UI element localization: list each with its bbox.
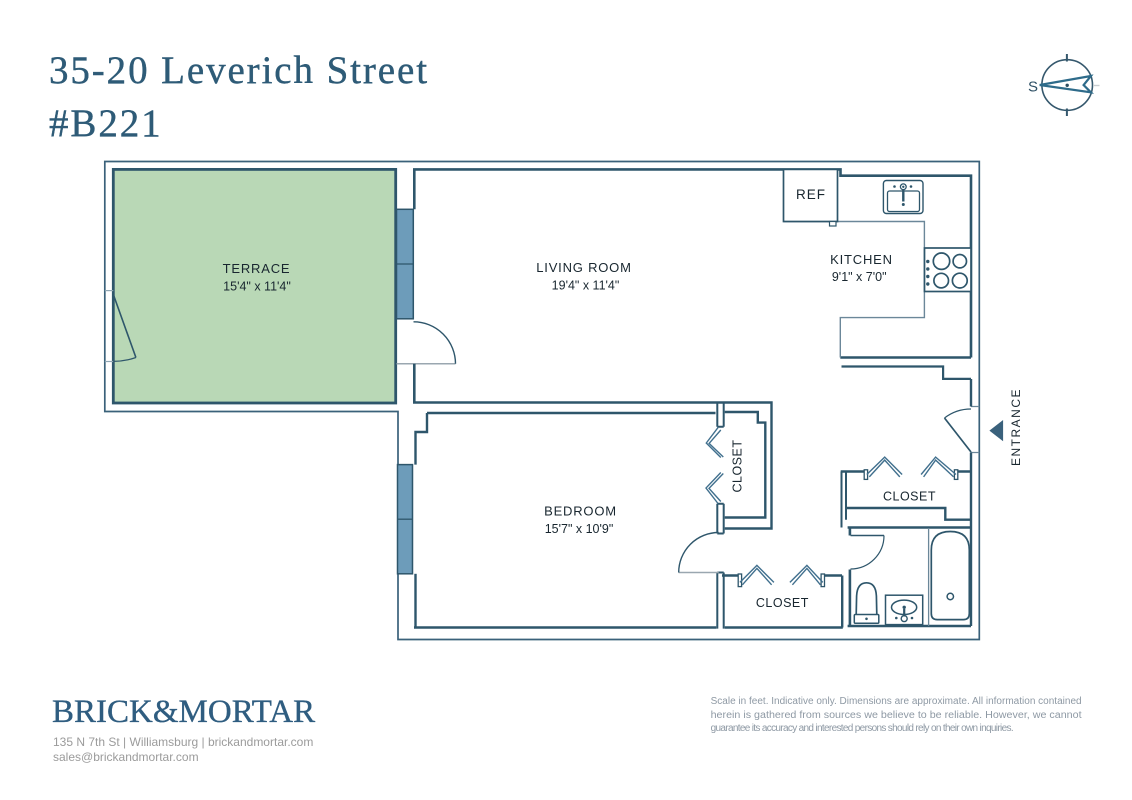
svg-text:ENTRANCE: ENTRANCE bbox=[1009, 388, 1023, 466]
svg-text:REF: REF bbox=[796, 187, 826, 202]
svg-text:S: S bbox=[1028, 79, 1038, 96]
svg-text:sales@brickandmortar.com: sales@brickandmortar.com bbox=[53, 750, 199, 764]
svg-text:herein is gathered from source: herein is gathered from sources we belie… bbox=[711, 710, 1082, 721]
svg-text:135 N 7th St | Williamsburg |: 135 N 7th St | Williamsburg | brickandmo… bbox=[53, 735, 313, 749]
svg-text:KITCHEN: KITCHEN bbox=[830, 252, 893, 267]
svg-text:15'4" x 11'4": 15'4" x 11'4" bbox=[223, 280, 291, 294]
svg-text:Scale in feet. Indicative only: Scale in feet. Indicative only. Dimensio… bbox=[711, 696, 1082, 707]
svg-text:BEDROOM: BEDROOM bbox=[544, 504, 617, 519]
svg-text:19'4" x 11'4": 19'4" x 11'4" bbox=[552, 279, 620, 293]
svg-text:CLOSET: CLOSET bbox=[883, 490, 936, 504]
svg-text:TERRACE: TERRACE bbox=[223, 261, 291, 276]
svg-text:BRICK&MORTAR: BRICK&MORTAR bbox=[52, 694, 315, 730]
svg-text:9'1" x 7'0": 9'1" x 7'0" bbox=[832, 270, 887, 284]
svg-text:CLOSET: CLOSET bbox=[756, 596, 809, 610]
svg-text:#B221: #B221 bbox=[49, 102, 163, 145]
svg-text:guarantee its accuracy and int: guarantee its accuracy and interested pe… bbox=[711, 723, 1014, 734]
svg-text:CLOSET: CLOSET bbox=[731, 439, 745, 492]
svg-text:LIVING ROOM: LIVING ROOM bbox=[536, 260, 631, 275]
svg-text:15'7" x 10'9": 15'7" x 10'9" bbox=[545, 522, 614, 536]
svg-text:35-20 Leverich Street: 35-20 Leverich Street bbox=[49, 49, 429, 92]
